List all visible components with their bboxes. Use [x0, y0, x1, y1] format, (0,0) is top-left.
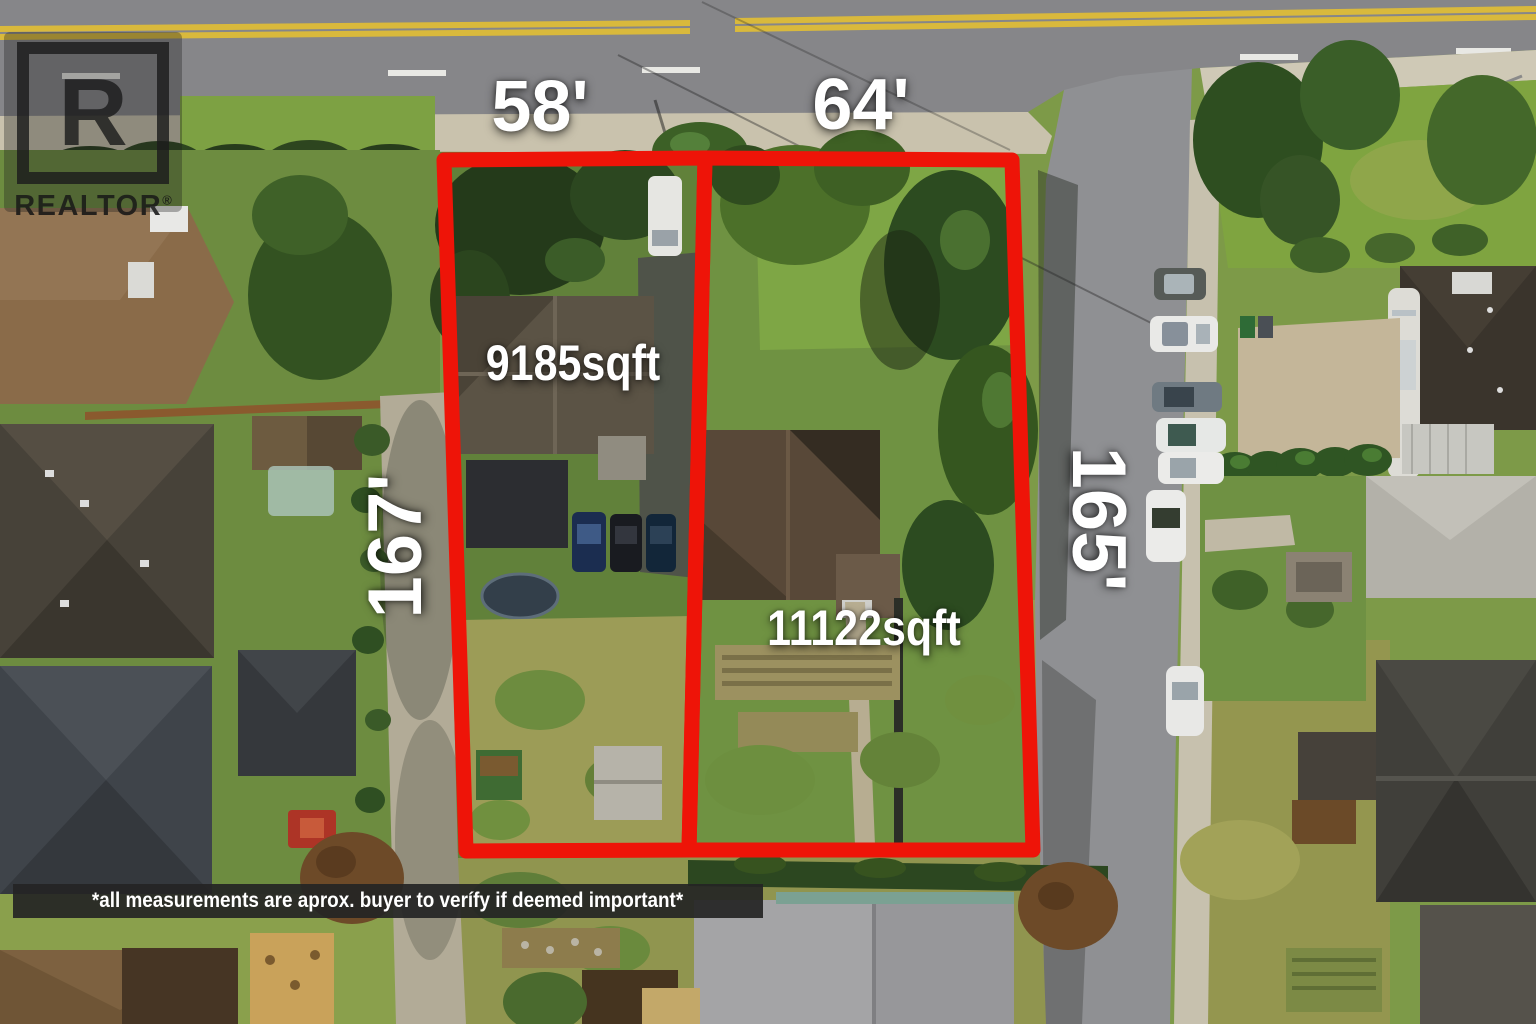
- lot-a-frontage-label: 58': [491, 71, 588, 143]
- realtor-brand-text: REALTOR®: [4, 190, 182, 223]
- lot-outline-left: [444, 158, 705, 851]
- registered-trademark-symbol: ®: [162, 192, 172, 207]
- lot-a-area-label: 9185sqft: [486, 338, 660, 388]
- aerial-listing-image: R REALTOR® 58' 64' 167' 165' 9185sqft 11…: [0, 0, 1536, 1024]
- lot-a-depth-label: 167': [358, 474, 434, 619]
- lot-b-frontage-label: 64': [812, 69, 909, 141]
- lot-b-area-label: 11122sqft: [767, 603, 961, 653]
- disclaimer-bar: *all measurements are aprox. buyer to ve…: [13, 884, 763, 918]
- realtor-logo-r-box: R: [17, 42, 169, 184]
- disclaimer-text: *all measurements are aprox. buyer to ve…: [92, 889, 683, 913]
- lot-outlines: [0, 0, 1536, 1024]
- lot-b-depth-label: 165': [1060, 447, 1136, 592]
- lot-outline-right: [689, 158, 1033, 850]
- realtor-logo-r: R: [58, 65, 127, 161]
- realtor-watermark: R REALTOR®: [4, 32, 182, 212]
